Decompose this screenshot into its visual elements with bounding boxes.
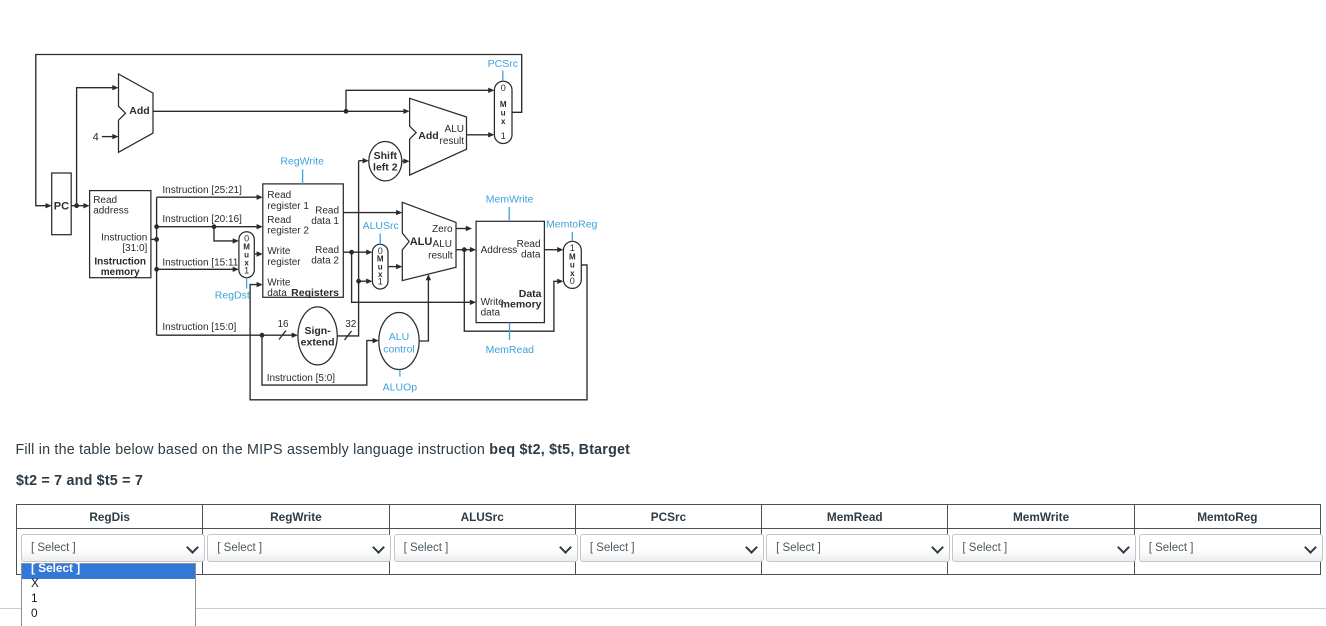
svg-text:result: result — [428, 251, 453, 262]
svg-text:ALUOp: ALUOp — [383, 382, 418, 394]
svg-text:Read: Read — [93, 195, 117, 206]
svg-text:MemRead: MemRead — [486, 344, 535, 356]
svg-text:ALU: ALU — [410, 236, 433, 248]
svg-text:left 2: left 2 — [373, 162, 398, 174]
svg-text:16: 16 — [277, 319, 289, 330]
svg-text:Write: Write — [267, 246, 291, 257]
svg-text:RegWrite: RegWrite — [280, 156, 324, 168]
svg-text:Write: Write — [267, 278, 291, 289]
svg-text:result: result — [440, 136, 465, 147]
svg-text:memory: memory — [101, 267, 140, 278]
svg-text:control: control — [383, 344, 415, 356]
svg-text:Read: Read — [315, 245, 339, 256]
svg-text:Instruction [20:16]: Instruction [20:16] — [162, 214, 242, 225]
svg-text:Instruction: Instruction — [94, 257, 146, 268]
svg-text:[31:0]: [31:0] — [122, 243, 147, 254]
svg-text:0: 0 — [570, 276, 575, 286]
svg-text:32: 32 — [345, 319, 357, 330]
svg-text:MemtoReg: MemtoReg — [546, 218, 598, 230]
svg-text:Sign-: Sign- — [304, 325, 331, 337]
svg-text:data: data — [267, 288, 287, 299]
svg-text:data 1: data 1 — [311, 216, 339, 227]
svg-text:Add: Add — [418, 130, 438, 142]
svg-text:register 1: register 1 — [267, 201, 309, 212]
svg-text:register: register — [267, 257, 301, 268]
svg-text:Registers: Registers — [291, 287, 339, 299]
svg-text:Instruction [5:0]: Instruction [5:0] — [267, 373, 336, 384]
svg-text:data: data — [521, 249, 541, 260]
svg-text:4: 4 — [93, 132, 99, 144]
svg-text:1: 1 — [501, 131, 506, 141]
svg-text:ALU: ALU — [445, 124, 464, 135]
svg-text:Instruction [25:21]: Instruction [25:21] — [162, 185, 242, 196]
svg-text:Read: Read — [517, 239, 541, 250]
svg-text:PC: PC — [54, 201, 69, 213]
svg-text:ALU: ALU — [389, 331, 409, 343]
svg-text:MemWrite: MemWrite — [486, 193, 534, 205]
svg-text:RegDst: RegDst — [215, 290, 250, 302]
svg-text:ALU: ALU — [433, 239, 452, 250]
svg-text:Shift: Shift — [374, 150, 398, 162]
svg-text:Instruction [15:11]: Instruction [15:11] — [162, 258, 241, 269]
svg-text:Address: Address — [481, 245, 518, 256]
svg-text:Add: Add — [129, 105, 149, 117]
svg-text:Read: Read — [267, 215, 291, 226]
svg-text:Zero: Zero — [432, 224, 453, 235]
svg-text:data 2: data 2 — [311, 256, 339, 267]
svg-text:extend: extend — [301, 337, 335, 349]
svg-text:data: data — [481, 307, 501, 318]
svg-text:address: address — [93, 206, 129, 217]
svg-text:x: x — [501, 117, 506, 126]
svg-text:Read: Read — [267, 190, 291, 201]
svg-text:memory: memory — [501, 299, 542, 311]
svg-text:1: 1 — [378, 277, 383, 287]
svg-text:ALUSrc: ALUSrc — [363, 220, 399, 232]
svg-text:0: 0 — [501, 83, 506, 93]
svg-text:1: 1 — [244, 265, 249, 275]
svg-text:register 2: register 2 — [267, 226, 309, 237]
svg-text:Instruction [15:0]: Instruction [15:0] — [162, 322, 236, 333]
svg-text:Read: Read — [315, 206, 339, 217]
svg-text:PCSrc: PCSrc — [488, 58, 518, 70]
